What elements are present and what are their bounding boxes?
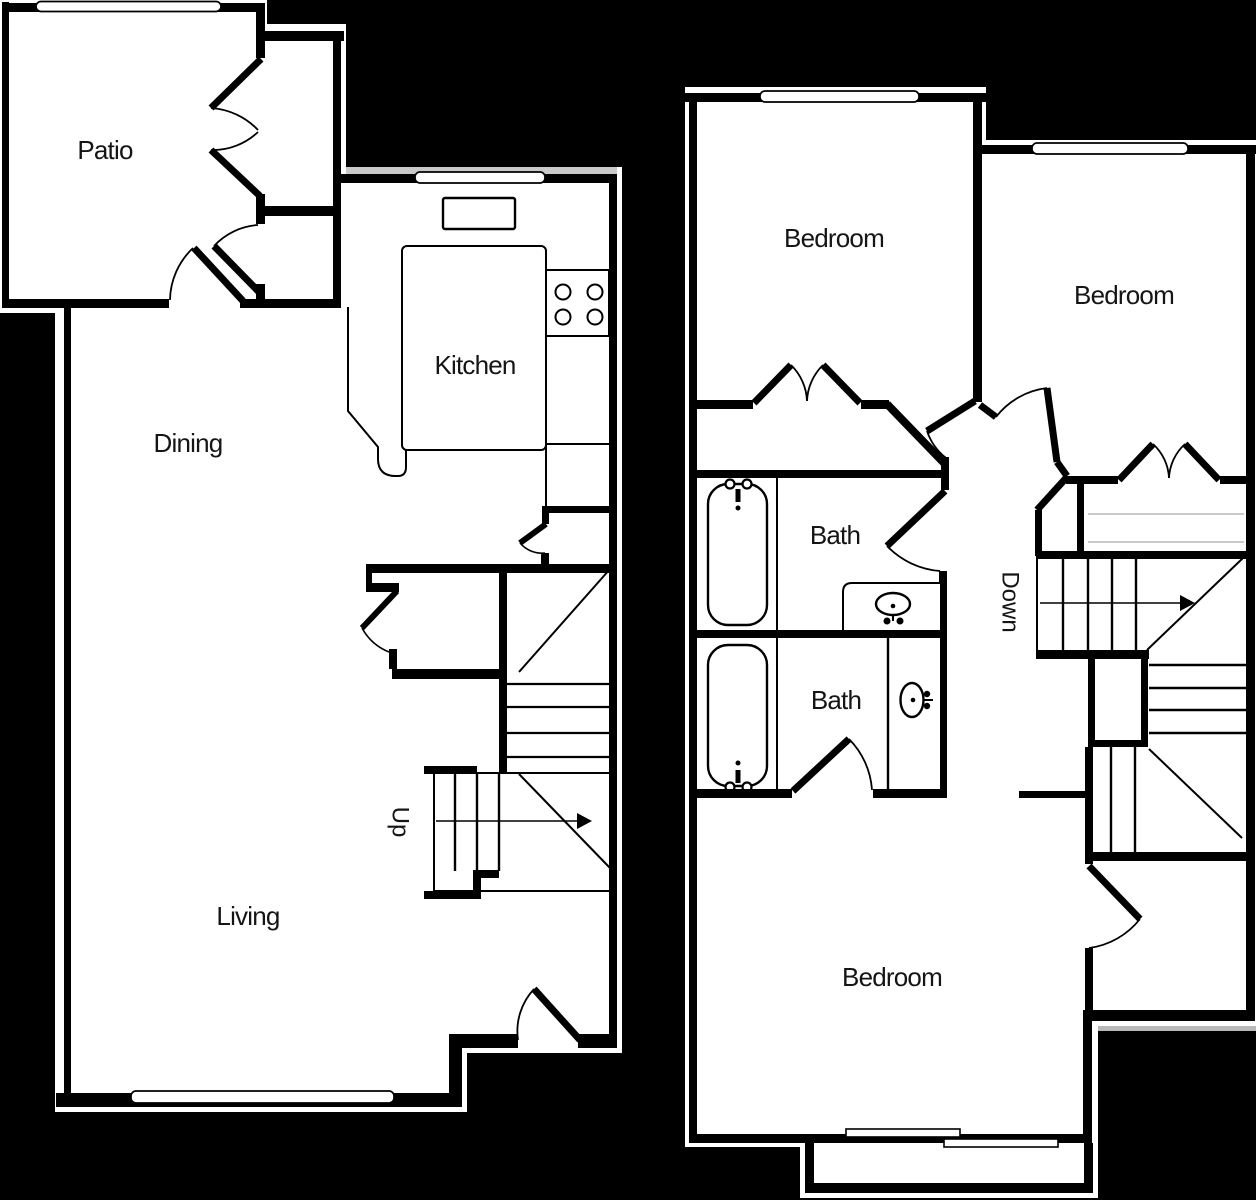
svg-text:Bedroom: Bedroom	[784, 223, 884, 253]
svg-text:Up: Up	[387, 807, 414, 838]
svg-text:Kitchen: Kitchen	[434, 350, 515, 380]
svg-text:Bedroom: Bedroom	[1074, 280, 1174, 310]
svg-text:Bedroom: Bedroom	[842, 962, 942, 992]
svg-text:Down: Down	[997, 571, 1024, 632]
svg-text:Dining: Dining	[154, 428, 223, 458]
svg-text:Bath: Bath	[810, 520, 860, 550]
svg-text:Patio: Patio	[77, 135, 133, 165]
svg-text:Living: Living	[216, 901, 279, 931]
svg-text:Bath: Bath	[811, 685, 861, 715]
